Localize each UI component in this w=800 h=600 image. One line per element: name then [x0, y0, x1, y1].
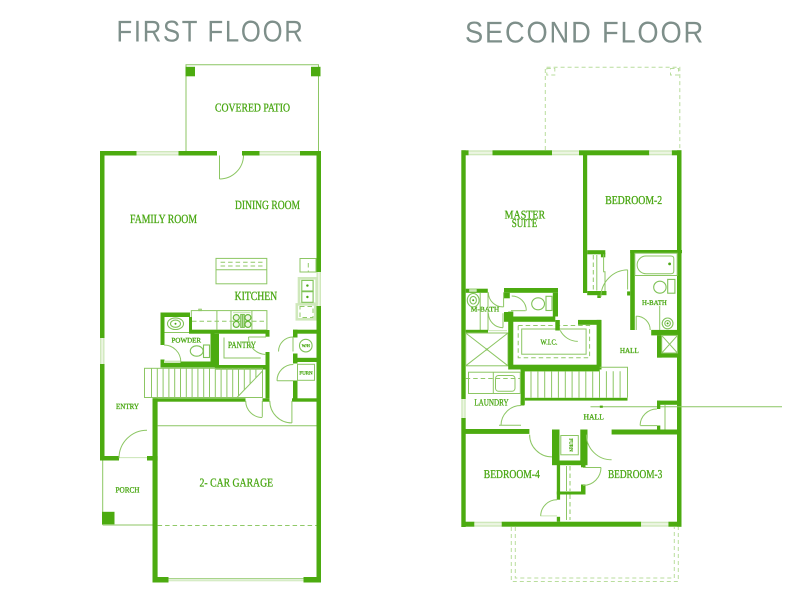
svg-text:SECOND FLOOR: SECOND FLOOR: [465, 17, 705, 50]
svg-text:LAUNDRY: LAUNDRY: [474, 399, 508, 409]
svg-text:FURN: FURN: [299, 371, 313, 377]
svg-text:HALL: HALL: [620, 346, 639, 355]
svg-text:BEDROOM-3: BEDROOM-3: [608, 467, 662, 481]
svg-text:FIRST FLOOR: FIRST FLOOR: [117, 16, 305, 49]
svg-text:FURN: FURN: [568, 438, 574, 452]
svg-text:DINING ROOM: DINING ROOM: [235, 198, 300, 212]
svg-text:PORCH: PORCH: [116, 485, 140, 494]
svg-text:ENTRY: ENTRY: [116, 402, 139, 411]
svg-text:BEDROOM-4: BEDROOM-4: [484, 467, 540, 481]
svg-text:2- CAR GARAGE: 2- CAR GARAGE: [200, 476, 274, 490]
svg-text:W/H: W/H: [302, 343, 310, 348]
svg-text:HALL: HALL: [584, 413, 604, 422]
svg-text:W.I.C.: W.I.C.: [541, 337, 558, 346]
svg-text:COVERED PATIO: COVERED PATIO: [215, 101, 290, 115]
svg-text:POWDER: POWDER: [172, 337, 202, 345]
svg-text:FAMILY ROOM: FAMILY ROOM: [130, 212, 197, 226]
svg-text:KITCHEN: KITCHEN: [235, 289, 278, 303]
svg-text:H-BATH: H-BATH: [642, 299, 667, 307]
svg-text:PANTRY: PANTRY: [228, 341, 256, 351]
svg-text:SUITE: SUITE: [512, 216, 538, 230]
svg-text:BEDROOM-2: BEDROOM-2: [605, 193, 662, 207]
